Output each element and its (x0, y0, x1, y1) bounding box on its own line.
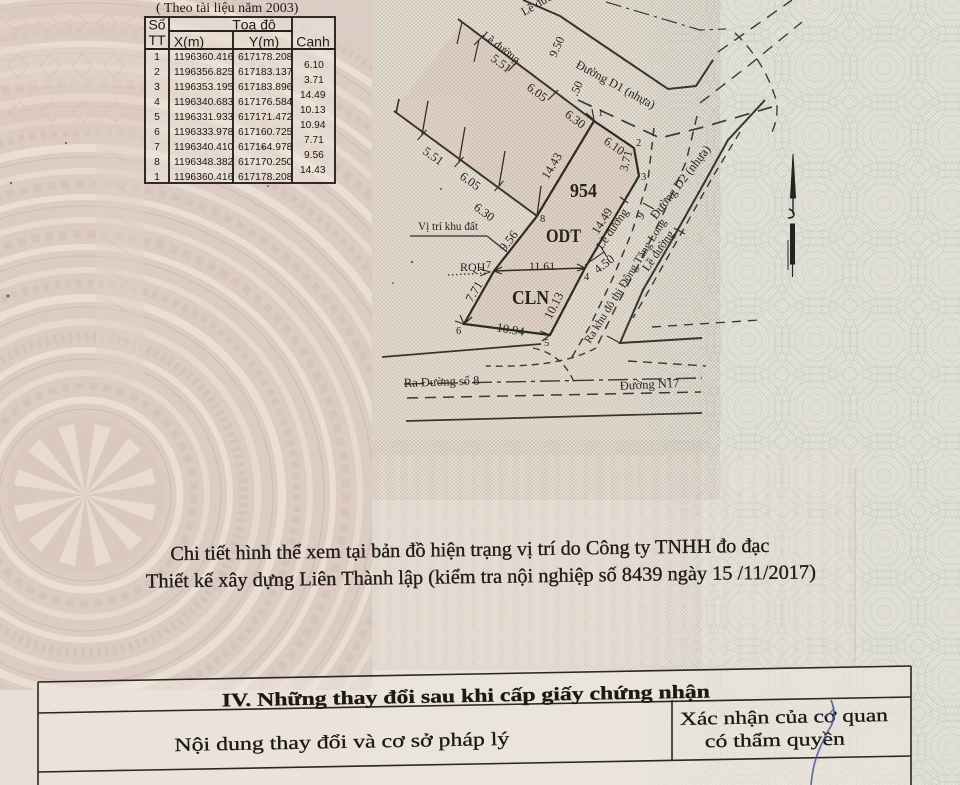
svg-text:5: 5 (154, 112, 160, 123)
svg-text:1196353.195: 1196353.195 (174, 82, 234, 93)
svg-text:617183.896: 617183.896 (238, 82, 293, 93)
svg-text:4: 4 (154, 97, 160, 108)
svg-text:6: 6 (154, 127, 160, 138)
svg-text:2: 2 (636, 138, 641, 149)
svg-text:1196348.382: 1196348.382 (174, 157, 234, 168)
svg-text:X(m): X(m) (174, 34, 204, 50)
svg-text:5: 5 (544, 338, 549, 349)
svg-text:1196340.410: 1196340.410 (174, 142, 234, 153)
svg-text:Vị trí khu đất: Vị trí khu đất (418, 220, 479, 233)
svg-text:1: 1 (154, 52, 160, 63)
svg-text:1: 1 (154, 172, 160, 183)
svg-text:Y(m): Y(m) (249, 34, 279, 50)
svg-text:1196356.825: 1196356.825 (174, 67, 234, 78)
svg-text:1196360.416: 1196360.416 (174, 172, 234, 183)
svg-text:617171.472: 617171.472 (238, 112, 293, 123)
svg-text:617164.978: 617164.978 (238, 142, 293, 153)
svg-text:9.56: 9.56 (304, 150, 324, 161)
svg-text:1: 1 (598, 108, 603, 119)
svg-text:Tọa độ: Tọa độ (232, 17, 276, 33)
svg-text:TT: TT (148, 32, 166, 48)
svg-text:14.43: 14.43 (300, 165, 326, 176)
svg-text:ODT: ODT (546, 226, 581, 247)
svg-text:RQH: RQH (460, 260, 486, 274)
svg-text:8: 8 (154, 157, 160, 168)
svg-text:4: 4 (584, 272, 590, 283)
svg-text:có thẩm quyền: có thẩm quyền (705, 730, 845, 753)
svg-text:7: 7 (486, 260, 491, 271)
svg-text:1196333.978: 1196333.978 (174, 127, 234, 138)
svg-text:617183.137: 617183.137 (238, 67, 293, 78)
svg-text:10.94: 10.94 (300, 120, 326, 131)
svg-text:617170.250: 617170.250 (238, 157, 293, 168)
svg-text:11.61: 11.61 (529, 259, 555, 273)
svg-text:10.13: 10.13 (300, 105, 326, 116)
svg-text:617176.584: 617176.584 (238, 97, 293, 108)
svg-text:617178.208: 617178.208 (238, 172, 293, 183)
svg-text:3: 3 (641, 172, 646, 183)
svg-text:Cạnh: Cạnh (296, 34, 329, 50)
svg-text:Số: Số (148, 17, 165, 33)
svg-text:7: 7 (154, 142, 160, 153)
svg-text:6: 6 (456, 326, 461, 337)
svg-text:1196331.933: 1196331.933 (174, 112, 234, 123)
svg-text:3: 3 (154, 82, 160, 93)
svg-text:617178.208: 617178.208 (238, 52, 293, 63)
svg-text:1196360.416: 1196360.416 (174, 52, 234, 63)
svg-text:3.71: 3.71 (304, 75, 324, 86)
svg-text:7.71: 7.71 (304, 135, 324, 146)
svg-text:Xác nhận của cơ quan: Xác nhận của cơ quan (680, 706, 888, 730)
svg-text:1196340.683: 1196340.683 (174, 97, 234, 108)
svg-text:6.10: 6.10 (304, 60, 324, 71)
svg-text:CLN: CLN (512, 287, 549, 309)
svg-text:617160.725: 617160.725 (238, 127, 293, 138)
svg-text:8: 8 (540, 214, 545, 225)
svg-text:14.49: 14.49 (300, 90, 326, 101)
svg-text:954: 954 (570, 181, 597, 202)
svg-text:2: 2 (154, 67, 160, 78)
svg-text:Ra Đường số 8: Ra Đường số 8 (404, 373, 480, 390)
